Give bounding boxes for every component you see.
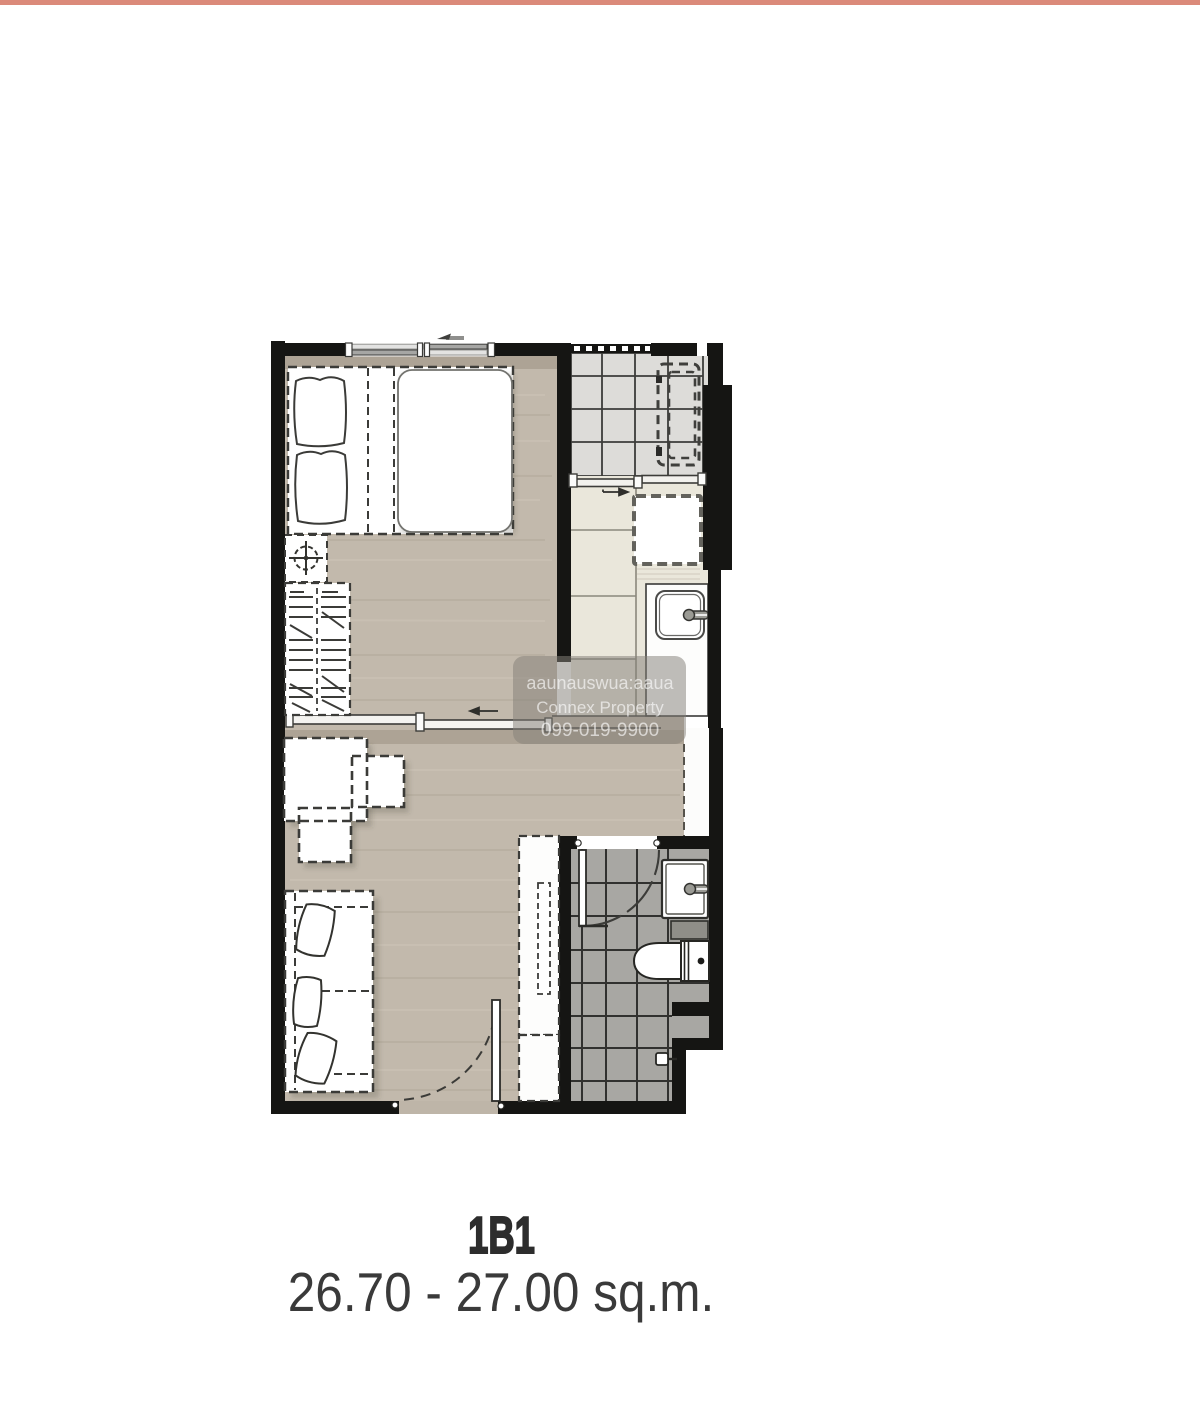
svg-text:26.70 - 27.00 sq.m.: 26.70 - 27.00 sq.m. [288,1263,714,1324]
svg-text:aaunauswua:aaua: aaunauswua:aaua [526,673,674,693]
svg-text:1B1: 1B1 [468,1205,535,1264]
svg-text:099-019-9900: 099-019-9900 [541,720,659,741]
svg-text:Connex Property: Connex Property [536,698,664,717]
